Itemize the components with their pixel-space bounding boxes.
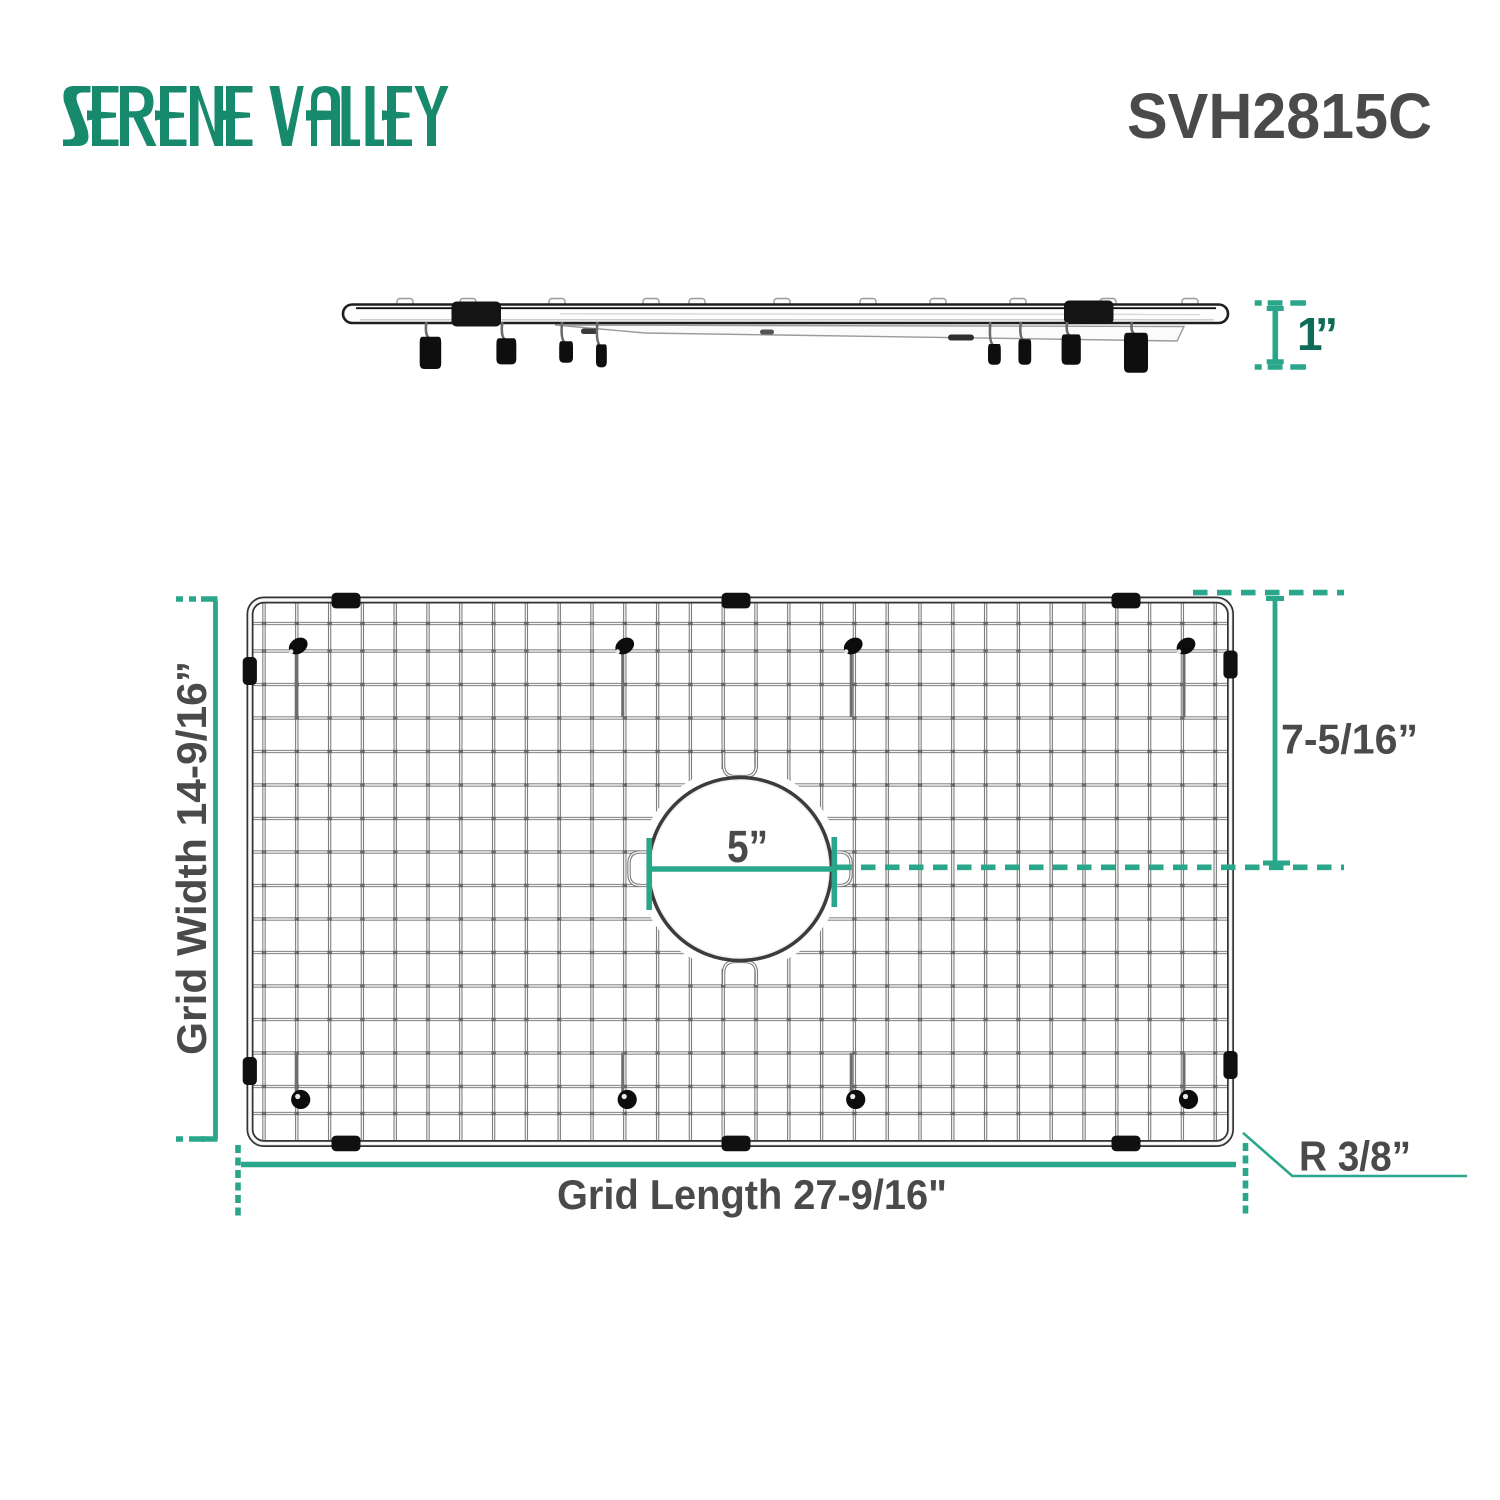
svg-text:SVH2815C: SVH2815C (1127, 80, 1432, 152)
svg-text:Grid Length 27-9/16": Grid Length 27-9/16" (557, 1171, 947, 1218)
svg-text:7-5/16”: 7-5/16” (1281, 716, 1418, 763)
svg-text:1”: 1” (1297, 308, 1338, 360)
svg-text:5”: 5” (727, 821, 768, 872)
svg-text:R 3/8”: R 3/8” (1299, 1133, 1411, 1180)
svg-text:Grid Width 14-9/16”: Grid Width 14-9/16” (168, 661, 215, 1055)
